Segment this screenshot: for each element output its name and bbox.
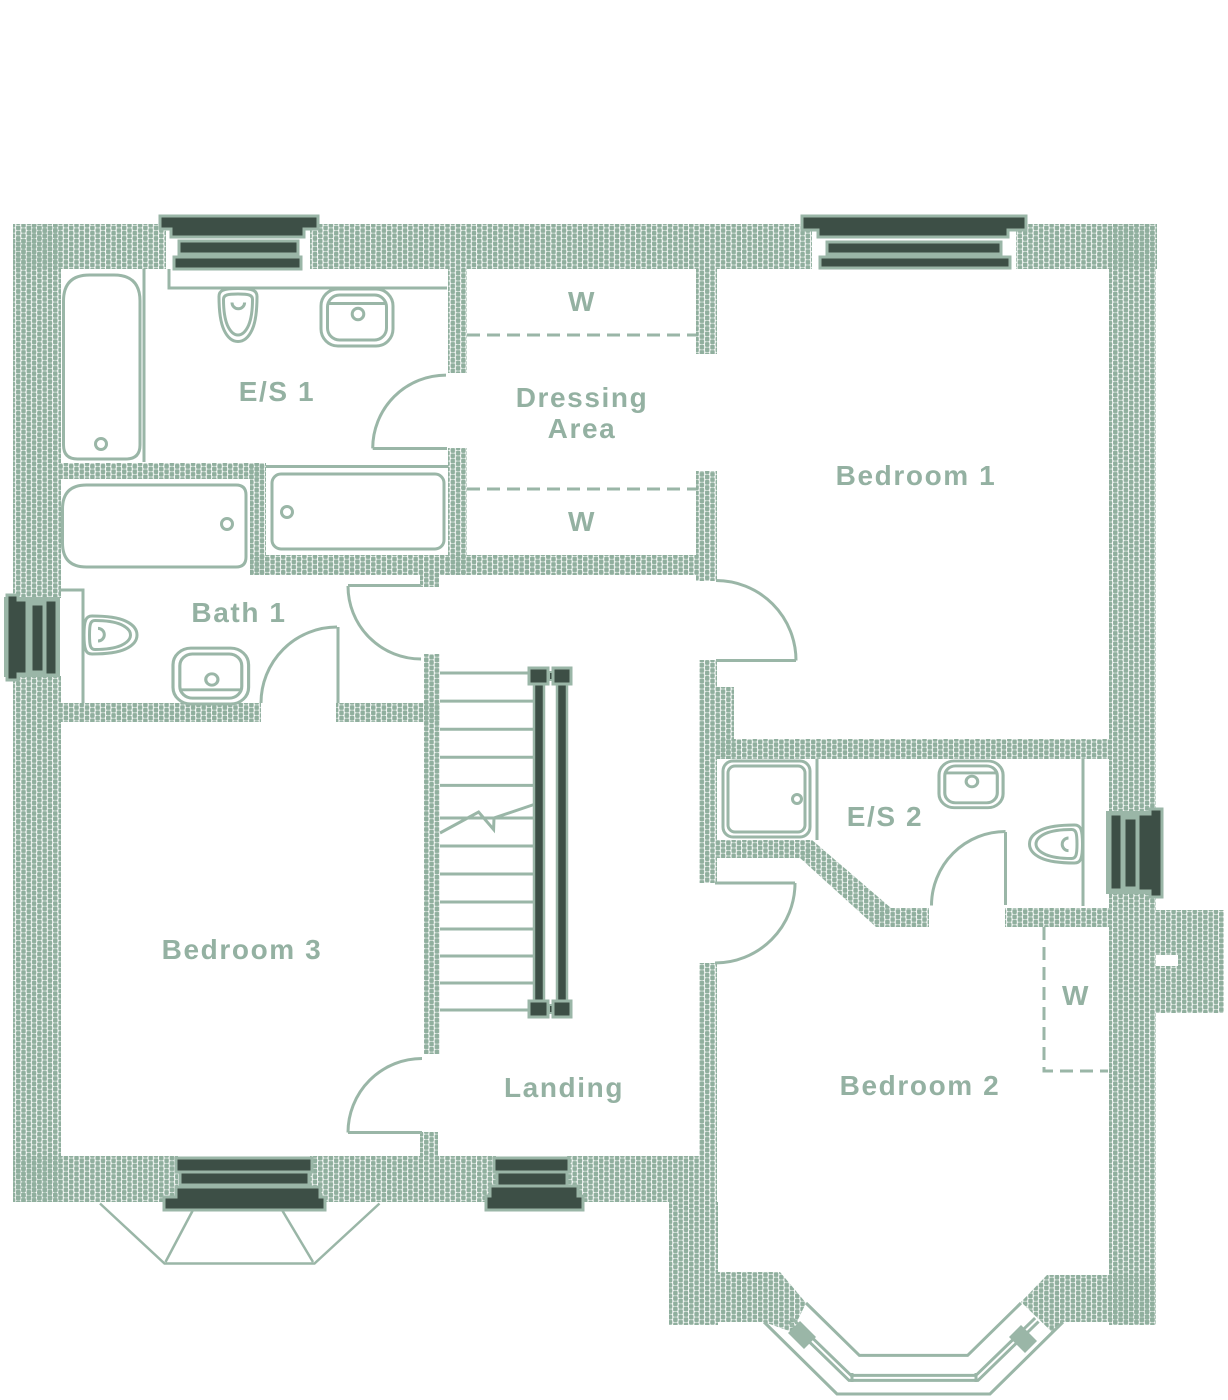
svg-text:E/S 1: E/S 1 [239,376,315,407]
svg-text:W: W [568,506,596,537]
svg-text:Dressing: Dressing [516,382,649,413]
svg-text:Bedroom 2: Bedroom 2 [840,1070,1001,1101]
svg-text:Bedroom 3: Bedroom 3 [162,934,323,965]
svg-text:W: W [1062,980,1090,1011]
svg-text:Area: Area [548,413,617,444]
svg-text:Bath 1: Bath 1 [191,597,286,628]
svg-text:W: W [568,286,596,317]
svg-text:E/S 2: E/S 2 [847,801,923,832]
svg-text:Landing: Landing [504,1072,624,1103]
svg-text:Bedroom 1: Bedroom 1 [836,460,997,491]
